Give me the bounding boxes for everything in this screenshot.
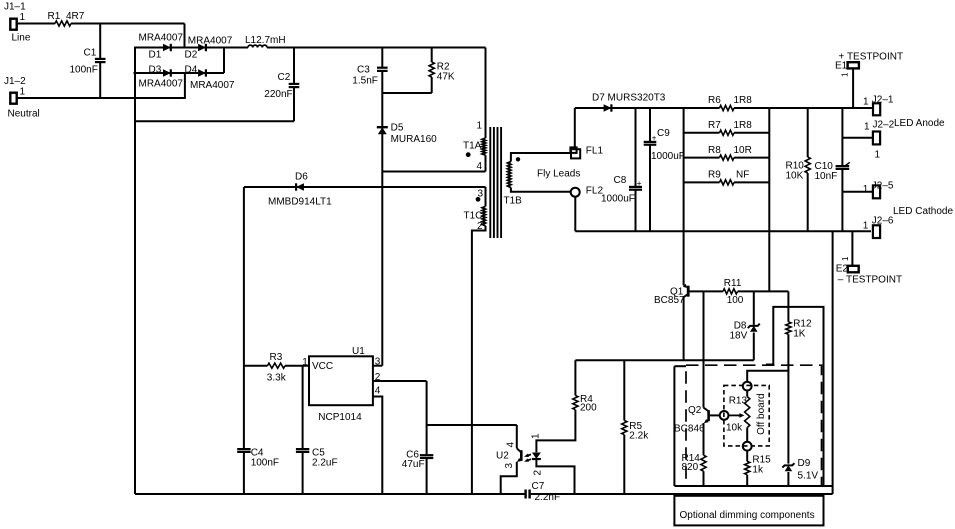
svg-text:T1B: T1B xyxy=(504,196,523,207)
svg-text:FL1: FL1 xyxy=(586,146,604,157)
svg-text:MRA4007: MRA4007 xyxy=(139,33,184,44)
svg-text:C9: C9 xyxy=(657,128,670,139)
svg-text:820: 820 xyxy=(682,462,699,473)
svg-text:1k: 1k xyxy=(752,465,764,476)
svg-text:1: 1 xyxy=(875,150,881,161)
svg-text:3: 3 xyxy=(504,463,515,469)
svg-text:1R8: 1R8 xyxy=(734,95,753,106)
svg-text:3: 3 xyxy=(478,189,484,200)
svg-text:100: 100 xyxy=(727,295,744,306)
svg-text:1.5nF: 1.5nF xyxy=(352,76,378,87)
svg-text:Fly Leads: Fly Leads xyxy=(537,169,580,180)
svg-text:D4: D4 xyxy=(185,65,198,76)
svg-text:C3: C3 xyxy=(357,65,370,76)
svg-text:10nF: 10nF xyxy=(815,171,838,182)
svg-text:Neutral: Neutral xyxy=(8,109,40,120)
svg-text:3: 3 xyxy=(375,357,381,368)
svg-text:R7: R7 xyxy=(708,120,721,131)
svg-text:1: 1 xyxy=(302,357,308,368)
svg-text:4: 4 xyxy=(505,442,516,448)
svg-text:+ TESTPOINT: + TESTPOINT xyxy=(839,52,904,63)
svg-text:1: 1 xyxy=(841,256,850,261)
svg-text:J2–6: J2–6 xyxy=(872,216,894,227)
svg-text:T1C: T1C xyxy=(464,211,483,222)
svg-text:100nF: 100nF xyxy=(251,458,279,469)
svg-text:D6: D6 xyxy=(295,172,308,183)
svg-text:47K: 47K xyxy=(437,72,455,83)
svg-text:10k: 10k xyxy=(726,423,743,434)
svg-text:E1: E1 xyxy=(835,61,848,72)
svg-text:1: 1 xyxy=(863,184,869,195)
svg-text:BC846: BC846 xyxy=(674,424,705,435)
svg-text:R11: R11 xyxy=(724,278,742,289)
svg-text:D3: D3 xyxy=(149,65,162,76)
svg-text:2.2nF: 2.2nF xyxy=(535,492,561,503)
svg-text:D1: D1 xyxy=(149,50,162,61)
svg-text:J2–2: J2–2 xyxy=(873,120,895,131)
svg-text:R1: R1 xyxy=(48,11,61,22)
svg-text:2: 2 xyxy=(375,372,381,383)
svg-text:10R: 10R xyxy=(734,145,752,156)
svg-text:18V: 18V xyxy=(730,331,748,342)
svg-text:D7 MURS320T3: D7 MURS320T3 xyxy=(592,93,666,104)
svg-text:C7: C7 xyxy=(532,481,545,492)
svg-text:Optional dimming components: Optional dimming components xyxy=(680,510,815,521)
svg-text:D9: D9 xyxy=(798,458,811,469)
svg-text:MRA4007: MRA4007 xyxy=(190,80,235,91)
svg-text:100nF: 100nF xyxy=(70,65,98,76)
svg-text:1: 1 xyxy=(863,221,869,232)
svg-text:2.2k: 2.2k xyxy=(629,431,649,442)
svg-text:J2–1: J2–1 xyxy=(872,95,894,106)
svg-text:+: + xyxy=(637,179,642,188)
svg-text:T1A: T1A xyxy=(463,141,482,152)
svg-text:LED Cathode: LED Cathode xyxy=(893,206,953,217)
svg-text:R3: R3 xyxy=(270,352,283,363)
svg-text:4: 4 xyxy=(375,386,381,397)
svg-text:Off board: Off board xyxy=(756,393,767,435)
svg-text:VCC: VCC xyxy=(312,361,333,372)
svg-text:MRA4007: MRA4007 xyxy=(139,79,184,90)
svg-text:1: 1 xyxy=(477,121,483,132)
svg-text:1: 1 xyxy=(863,97,869,108)
svg-text:D2: D2 xyxy=(185,50,198,61)
svg-text:L12.7mH: L12.7mH xyxy=(245,35,286,46)
svg-text:1000uF: 1000uF xyxy=(601,194,635,205)
svg-text:3.3k: 3.3k xyxy=(267,373,287,384)
svg-text:2: 2 xyxy=(533,470,544,476)
svg-text:10K: 10K xyxy=(786,170,804,181)
svg-text:220nF: 220nF xyxy=(264,89,292,100)
svg-text:1000uF: 1000uF xyxy=(651,151,685,162)
svg-text:Q2: Q2 xyxy=(688,405,702,416)
svg-text:U1: U1 xyxy=(352,346,365,357)
svg-text:200: 200 xyxy=(580,403,597,414)
svg-text:1K: 1K xyxy=(793,329,806,340)
svg-text:47uF: 47uF xyxy=(402,459,425,470)
svg-text:C1: C1 xyxy=(84,48,97,59)
svg-text:U2: U2 xyxy=(496,451,509,462)
svg-text:MMBD914LT1: MMBD914LT1 xyxy=(268,197,332,208)
svg-text:J1–1: J1–1 xyxy=(4,2,26,13)
svg-text:C8: C8 xyxy=(614,175,627,186)
svg-text:J1–2: J1–2 xyxy=(4,76,26,87)
svg-text:R13: R13 xyxy=(729,396,748,407)
svg-text:1: 1 xyxy=(864,122,870,133)
svg-text:5.1V: 5.1V xyxy=(798,471,819,482)
svg-text:BC857: BC857 xyxy=(654,295,685,306)
svg-text:Line: Line xyxy=(12,33,31,44)
svg-text:R6: R6 xyxy=(708,95,721,106)
svg-text:1: 1 xyxy=(531,433,542,439)
svg-text:C2: C2 xyxy=(278,72,291,83)
svg-text:1R8: 1R8 xyxy=(734,120,753,131)
svg-text:MRA4007: MRA4007 xyxy=(188,36,233,47)
svg-text:LED Anode: LED Anode xyxy=(894,118,945,129)
svg-text:D5: D5 xyxy=(391,123,404,134)
svg-text:2.2uF: 2.2uF xyxy=(312,458,338,469)
svg-text:1: 1 xyxy=(841,72,850,77)
svg-text:4: 4 xyxy=(477,161,483,172)
svg-text:J2–5: J2–5 xyxy=(872,181,894,192)
svg-text:NCP1014: NCP1014 xyxy=(318,412,362,423)
svg-text:E2: E2 xyxy=(836,264,849,275)
svg-text:NF: NF xyxy=(736,170,749,181)
svg-text:R8: R8 xyxy=(708,145,721,156)
svg-text:2: 2 xyxy=(477,221,483,232)
svg-text:– TESTPOINT: – TESTPOINT xyxy=(838,275,902,286)
svg-text:R9: R9 xyxy=(708,170,721,181)
svg-text:1: 1 xyxy=(20,87,26,98)
svg-text:MURA160: MURA160 xyxy=(391,134,438,145)
svg-text:1: 1 xyxy=(20,12,26,23)
svg-text:4R7: 4R7 xyxy=(66,11,85,22)
